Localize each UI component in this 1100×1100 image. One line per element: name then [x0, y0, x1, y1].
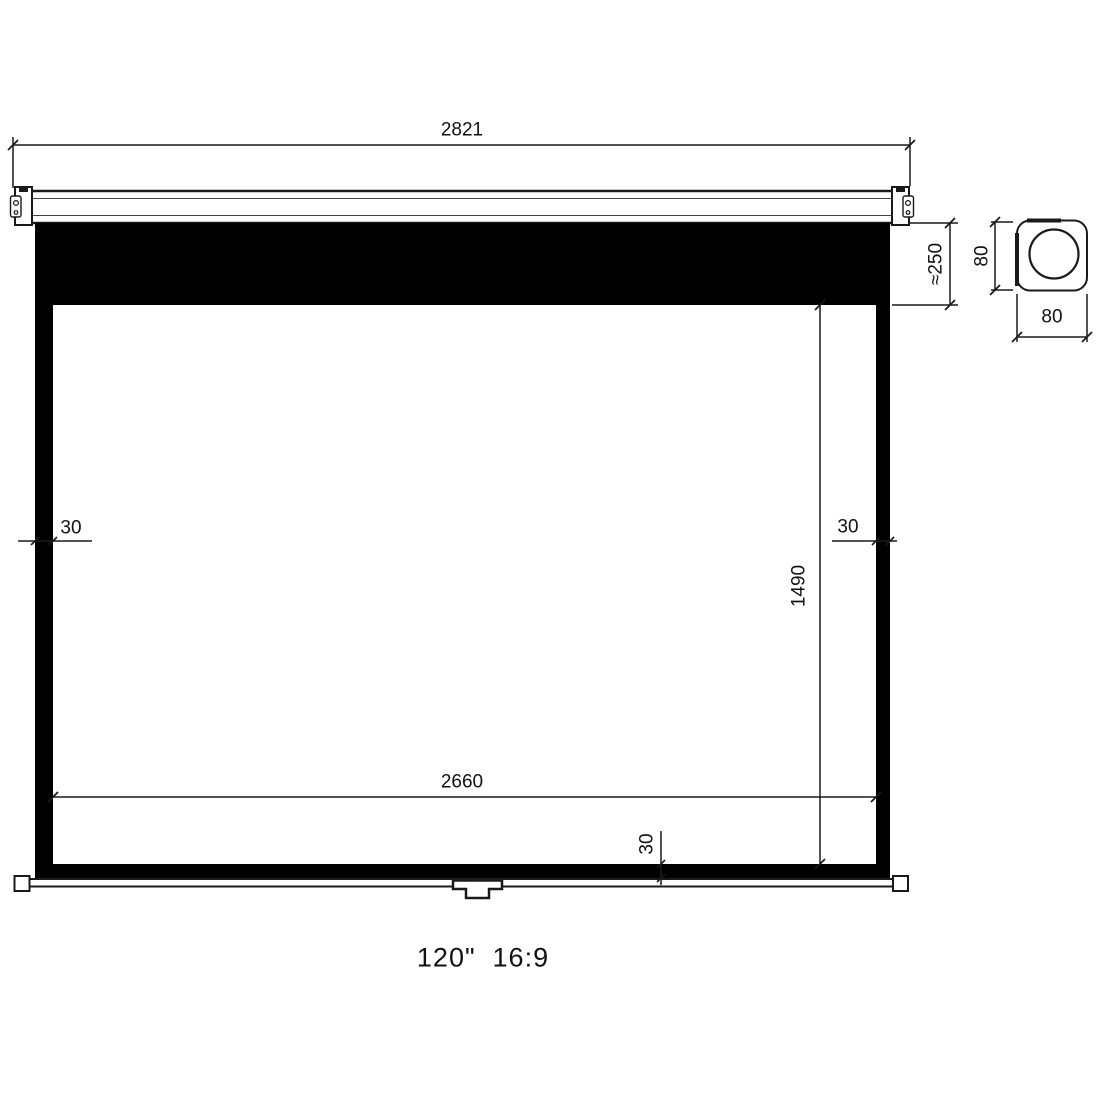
dim-screen-height	[815, 300, 825, 869]
size-caption: 120" 16:9	[417, 943, 549, 974]
section-outline	[1017, 221, 1087, 291]
label-left-border: 30	[60, 519, 81, 538]
drawing-canvas: 2821 ≈250 80 80 30 30 1490 2660 30 120" …	[0, 0, 1100, 1100]
housing-bar	[22, 191, 895, 223]
slat-left-cap	[15, 876, 30, 891]
label-section-height: 80	[973, 245, 992, 266]
right-end-cap	[892, 187, 914, 225]
pull-handle	[453, 881, 502, 899]
label-bottom-border: 30	[638, 833, 657, 854]
label-screen-height: 1490	[790, 565, 809, 607]
dim-section-height	[990, 217, 1013, 295]
case-cross-section	[1017, 221, 1087, 291]
dim-screen-width	[48, 792, 881, 802]
label-top-drop: ≈250	[927, 243, 946, 285]
slat-right-cap	[893, 876, 908, 891]
dim-case-width	[8, 137, 915, 188]
screen-technical-drawing	[0, 0, 1100, 1100]
label-section-width: 80	[1041, 308, 1062, 327]
label-case-width: 2821	[441, 121, 483, 140]
label-right-border: 30	[837, 518, 858, 537]
left-end-cap	[11, 187, 33, 225]
label-screen-width: 2660	[441, 773, 483, 792]
